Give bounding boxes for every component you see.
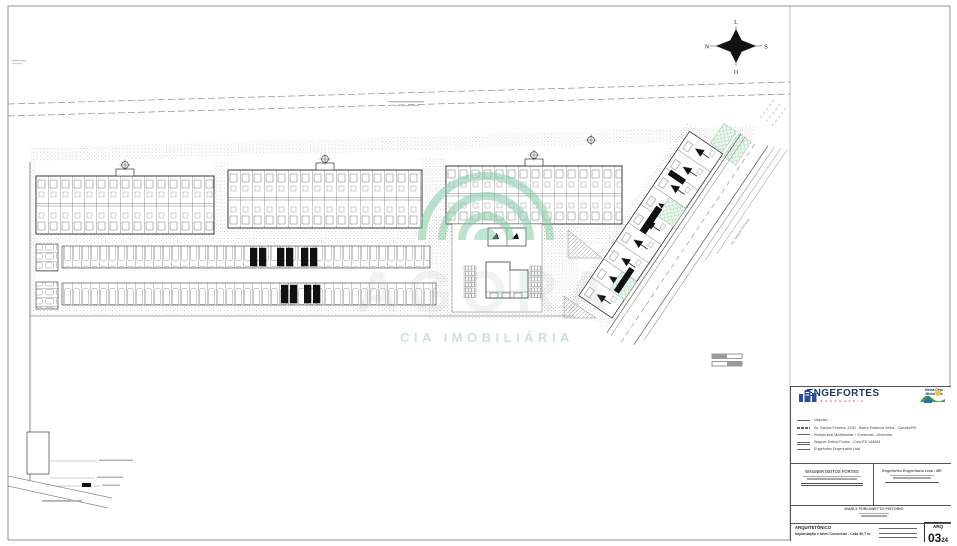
legend-row: Wagner Deitos Fortes - Crea RS 169684 — [791, 439, 951, 446]
signature-name: MARLY FURLANETTO PISTORIO — [831, 507, 917, 511]
sheet-number: 03 — [928, 532, 941, 544]
building-block-3 — [446, 159, 622, 224]
compass-east-label: L — [734, 19, 738, 26]
discipline-label: ARQUITETÔNICO — [795, 525, 831, 530]
divider — [873, 463, 874, 505]
title-block-logos: ENGEFORTES ENGENHARIA Minha Casa Minha V… — [791, 387, 951, 415]
line-sample — [797, 449, 810, 450]
building-block-2 — [228, 163, 422, 228]
legend-row: Engefortes Engenharia Ltda — [791, 446, 951, 453]
drawing-sheet: L S O N — [0, 0, 957, 546]
sheet-number-cell: ARQ 0324 — [924, 522, 951, 542]
signature-right: Engefortes Engenharia Ltda - ME — [875, 463, 949, 505]
fine-print — [807, 478, 857, 479]
signature-center: MARLY FURLANETTO PISTORIO — [831, 505, 917, 523]
mcmv-icon — [919, 389, 945, 404]
field-line — [879, 528, 917, 529]
title-block: ENGEFORTES ENGENHARIA Minha Casa Minha V… — [790, 386, 951, 541]
compass-south-label: S — [764, 44, 768, 51]
watermark-subtitle: CIA IMOBILIÁRIA — [400, 330, 574, 345]
fine-print — [861, 515, 887, 516]
engefortes-buildings-icon — [797, 389, 819, 402]
legend-text: Av. Santos Ferreira, 4200 - Bairro Estân… — [814, 426, 916, 430]
sheet-total: 24 — [941, 538, 948, 544]
fine-print — [890, 475, 934, 476]
scale-bars — [712, 354, 742, 366]
fine-print — [803, 476, 861, 477]
fine-print — [859, 513, 889, 514]
signature-line — [801, 485, 863, 486]
line-sample — [797, 434, 810, 435]
line-sample — [797, 427, 810, 429]
sheet-code: ARQ — [925, 524, 951, 529]
compass-north-label: N — [705, 44, 710, 51]
signature-name: WAGNER DEITOS FORTES — [793, 469, 871, 474]
compass-west-label: O — [734, 69, 739, 76]
legend-row: Residencial Multifamiliar / Comercial - … — [791, 431, 951, 438]
legend-row: Av. Santos Ferreira, 4200 - Bairro Estân… — [791, 424, 951, 431]
top-road — [8, 60, 790, 126]
legend-row: Nápoles — [791, 417, 951, 424]
signature-line — [801, 483, 863, 484]
fine-print — [893, 477, 931, 478]
mcmv-logo: Minha Casa Minha Vida — [919, 389, 949, 396]
building-block-1 — [36, 169, 214, 234]
field-line — [879, 537, 917, 538]
line-sample — [797, 420, 810, 421]
sheet-info: ARQUITETÔNICO Implantação e Nível Comerc… — [791, 523, 951, 541]
watermark-brand: AGORA — [357, 260, 618, 325]
signature-name: Engefortes Engenharia Ltda - ME — [875, 469, 949, 473]
bottom-left-annotations — [8, 432, 133, 508]
legend-text: Wagner Deitos Fortes - Crea RS 169684 — [814, 440, 880, 444]
avenue-name-label: Av. Santos Ferreira — [730, 218, 750, 246]
sheet-subject: Implantação e Nível Comercial - Cota 36,… — [795, 532, 870, 536]
line-sample — [797, 442, 810, 445]
compass-rose: L S O N — [705, 19, 769, 76]
legend-text: Nápoles — [814, 418, 828, 422]
signature-line — [885, 482, 939, 483]
legend-text: Residencial Multifamiliar / Comercial - … — [814, 433, 892, 437]
engefortes-logo: ENGEFORTES ENGENHARIA — [797, 389, 889, 403]
signature-left: WAGNER DEITOS FORTES — [793, 463, 871, 505]
project-legend: Nápoles Av. Santos Ferreira, 4200 - Bair… — [791, 417, 951, 453]
legend-text: Engefortes Engenharia Ltda — [814, 447, 860, 451]
field-line — [879, 533, 917, 534]
